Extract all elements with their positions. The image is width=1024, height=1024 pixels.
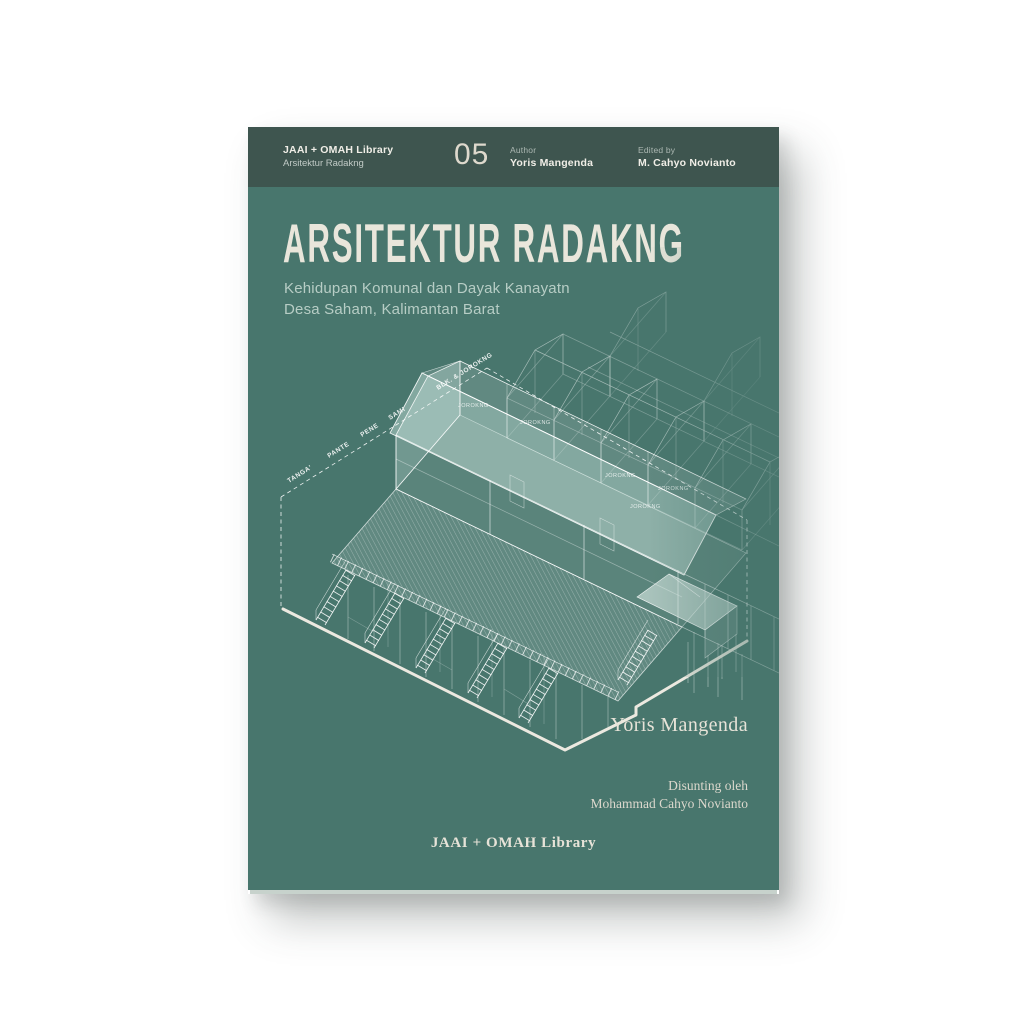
- editor-credit: Disunting oleh Mohammad Cahyo Novianto: [591, 777, 748, 813]
- page-background: JAAI + OMAH Library Arsitektur Radakng 0…: [0, 0, 1024, 1024]
- editor-credit-line-2: Mohammad Cahyo Novianto: [591, 795, 748, 813]
- axis-label-pante: PANTE: [326, 441, 351, 460]
- drawing-fade-overlay: [648, 247, 779, 677]
- cover-front: JAAI + OMAH Library Arsitektur Radakng 0…: [248, 127, 779, 890]
- axis-label-pene: PENE: [359, 422, 380, 439]
- publisher-imprint: JAAI + OMAH Library: [248, 835, 779, 852]
- axis-label-tanga: TANGA': [286, 464, 313, 485]
- room-label: JOROKNG: [458, 403, 489, 409]
- room-label: JOROKNG: [605, 473, 636, 479]
- author-signature: Yoris Mangenda: [611, 714, 748, 737]
- editor-credit-line-1: Disunting oleh: [591, 777, 748, 795]
- longhouse-axonometric-drawing: TANGA' PANTE PENE SAMI BLK. & JOROKNG JO…: [248, 127, 779, 890]
- book-cover: JAAI + OMAH Library Arsitektur Radakng 0…: [248, 127, 779, 894]
- room-label: JOROKNG: [520, 420, 551, 426]
- book-page-edge: [250, 890, 777, 894]
